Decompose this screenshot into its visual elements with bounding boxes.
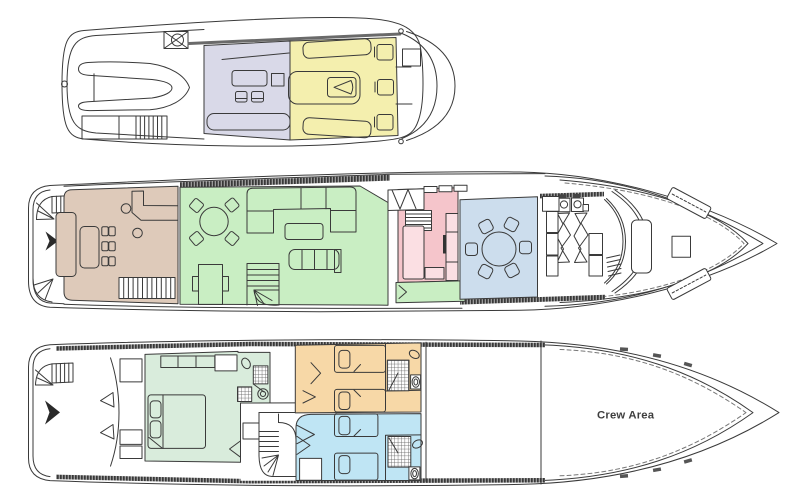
svg-text:Crew Area: Crew Area <box>597 410 655 422</box>
